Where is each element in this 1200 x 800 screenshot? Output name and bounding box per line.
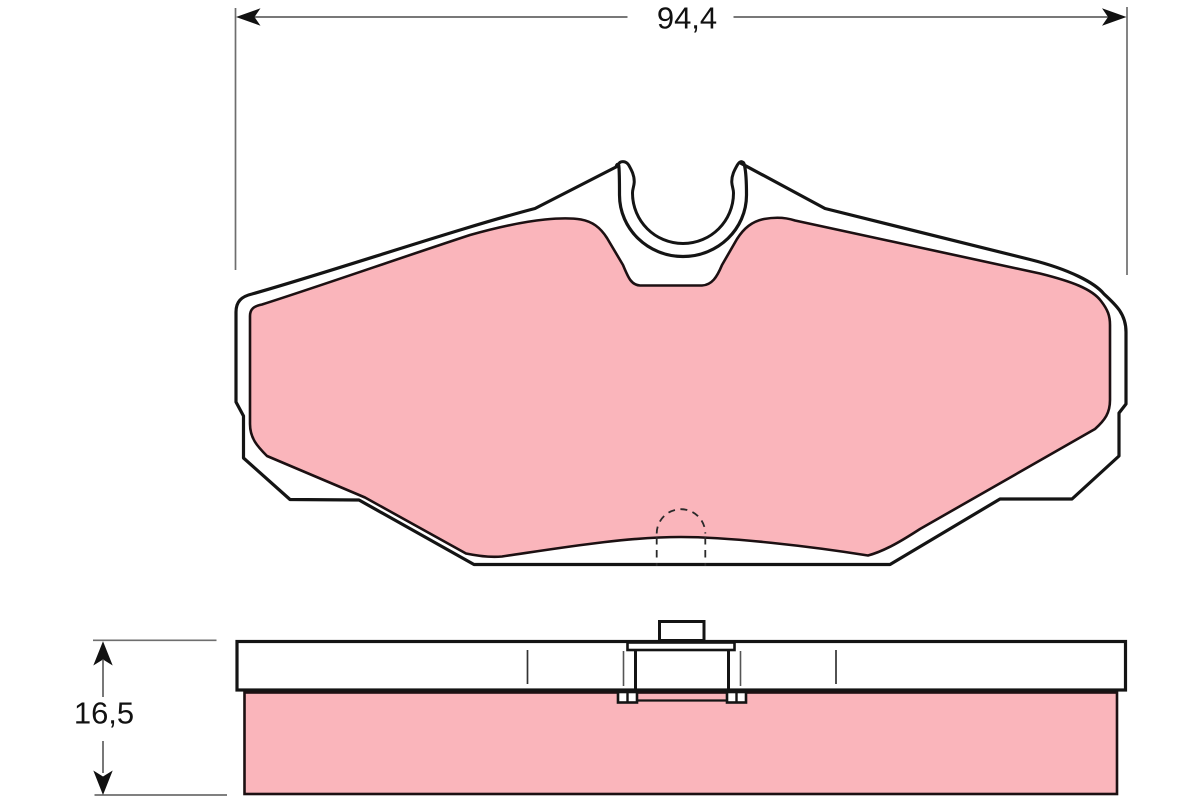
svg-text:94,4: 94,4	[657, 1, 717, 36]
svg-text:16,5: 16,5	[74, 696, 134, 731]
